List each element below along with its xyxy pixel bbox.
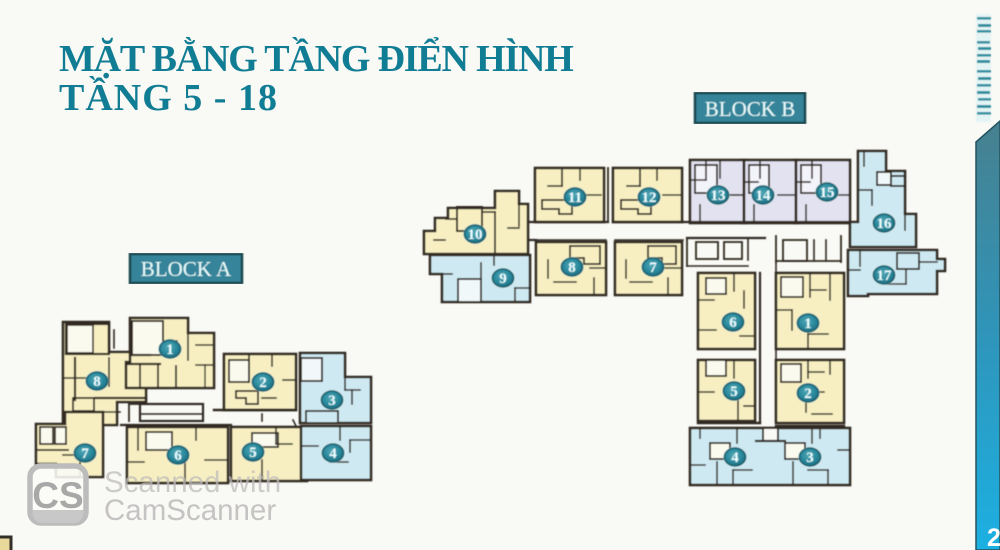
svg-text:BLOCK B: BLOCK B — [705, 97, 795, 121]
svg-text:CS: CS — [32, 475, 83, 516]
svg-text:7: 7 — [81, 446, 89, 462]
svg-text:4: 4 — [329, 446, 337, 462]
svg-text:CamScanner: CamScanner — [104, 494, 276, 527]
svg-text:3: 3 — [806, 450, 814, 466]
svg-text:TẦNG 5 - 18: TẦNG 5 - 18 — [59, 76, 278, 119]
svg-text:10: 10 — [468, 227, 483, 243]
svg-text:15: 15 — [820, 185, 835, 201]
svg-text:9: 9 — [499, 271, 507, 287]
svg-text:1: 1 — [166, 342, 174, 358]
svg-text:2: 2 — [259, 375, 267, 391]
svg-text:2: 2 — [804, 386, 812, 402]
svg-text:17: 17 — [877, 268, 893, 284]
svg-text:5: 5 — [249, 445, 257, 461]
svg-text:MẶT BẰNG TẦNG ĐIỂN HÌNH: MẶT BẰNG TẦNG ĐIỂN HÌNH — [59, 37, 573, 80]
svg-text:13: 13 — [711, 188, 726, 204]
svg-text:16: 16 — [877, 216, 893, 232]
svg-text:6: 6 — [174, 448, 182, 464]
svg-text:5: 5 — [730, 384, 738, 400]
svg-text:6: 6 — [729, 315, 737, 331]
svg-text:2: 2 — [987, 524, 1000, 550]
svg-text:3: 3 — [328, 393, 336, 409]
svg-text:1: 1 — [804, 316, 812, 332]
svg-text:7: 7 — [649, 260, 657, 276]
svg-text:14: 14 — [756, 188, 772, 204]
svg-text:BLOCK A: BLOCK A — [141, 257, 232, 281]
svg-text:4: 4 — [731, 450, 739, 466]
svg-text:8: 8 — [568, 260, 576, 276]
svg-text:8: 8 — [93, 374, 101, 390]
svg-text:12: 12 — [642, 190, 657, 206]
svg-text:11: 11 — [568, 190, 582, 206]
